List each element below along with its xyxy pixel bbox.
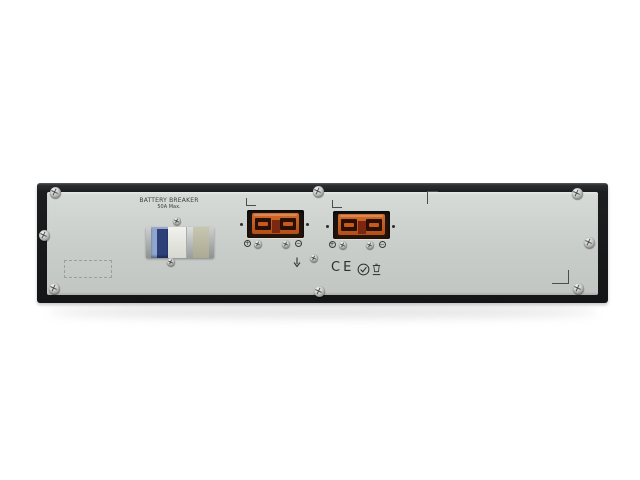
battery-breaker-switch bbox=[146, 227, 214, 258]
pilot-hole bbox=[240, 223, 243, 226]
label-placeholder bbox=[64, 260, 112, 278]
earth-ground-icon bbox=[293, 253, 301, 272]
corner-mark-icon bbox=[332, 200, 342, 208]
screw-icon bbox=[573, 283, 584, 294]
minus-polarity-icon: − bbox=[379, 241, 386, 248]
battery-breaker-rating: 50A Max. bbox=[129, 205, 209, 210]
battery-connector-port-2 bbox=[333, 211, 390, 239]
rcm-mark-icon bbox=[357, 261, 370, 280]
pilot-hole bbox=[392, 225, 395, 228]
screw-icon bbox=[39, 230, 50, 241]
screw-icon bbox=[282, 240, 290, 248]
screw-icon bbox=[314, 286, 325, 297]
screw-icon bbox=[366, 241, 374, 249]
plus-polarity-icon: + bbox=[329, 241, 336, 248]
corner-mark-icon bbox=[246, 198, 256, 206]
screw-icon bbox=[167, 258, 175, 266]
corner-mark-icon bbox=[427, 191, 438, 204]
anderson-connector-icon bbox=[252, 213, 299, 234]
screw-icon bbox=[50, 187, 61, 198]
breaker-blue-rocker bbox=[151, 227, 168, 258]
pilot-hole bbox=[326, 225, 329, 228]
weee-bin-icon bbox=[372, 261, 381, 280]
screw-icon bbox=[572, 188, 583, 199]
breaker-end-cap bbox=[209, 227, 214, 258]
connector-contact-slot bbox=[366, 219, 382, 231]
screw-icon bbox=[254, 240, 262, 248]
connector-divider bbox=[272, 220, 280, 233]
product-photo: BATTERY BREAKER 50A Max. + − bbox=[0, 0, 640, 480]
screw-icon bbox=[310, 254, 318, 262]
connector-contact-slot bbox=[341, 219, 357, 231]
connector-contact-slot bbox=[255, 218, 271, 230]
minus-polarity-icon: − bbox=[295, 240, 302, 247]
ce-mark: CE bbox=[331, 261, 354, 274]
drop-shadow bbox=[48, 306, 597, 318]
plus-polarity-icon: + bbox=[244, 240, 251, 247]
screw-icon bbox=[173, 217, 181, 225]
connector-divider bbox=[358, 221, 366, 234]
connector-contact-slot bbox=[280, 218, 296, 230]
screw-icon bbox=[313, 186, 324, 197]
battery-connector-port-1 bbox=[247, 210, 304, 238]
breaker-body bbox=[168, 227, 187, 258]
rack-unit-rear-panel: BATTERY BREAKER 50A Max. + − bbox=[37, 183, 608, 303]
screw-icon bbox=[584, 237, 595, 248]
screw-icon bbox=[339, 241, 347, 249]
screw-icon bbox=[49, 283, 60, 294]
pilot-hole bbox=[306, 223, 309, 226]
anderson-connector-icon bbox=[338, 214, 385, 235]
breaker-beige-block bbox=[193, 227, 209, 258]
corner-mark-icon bbox=[552, 270, 569, 284]
